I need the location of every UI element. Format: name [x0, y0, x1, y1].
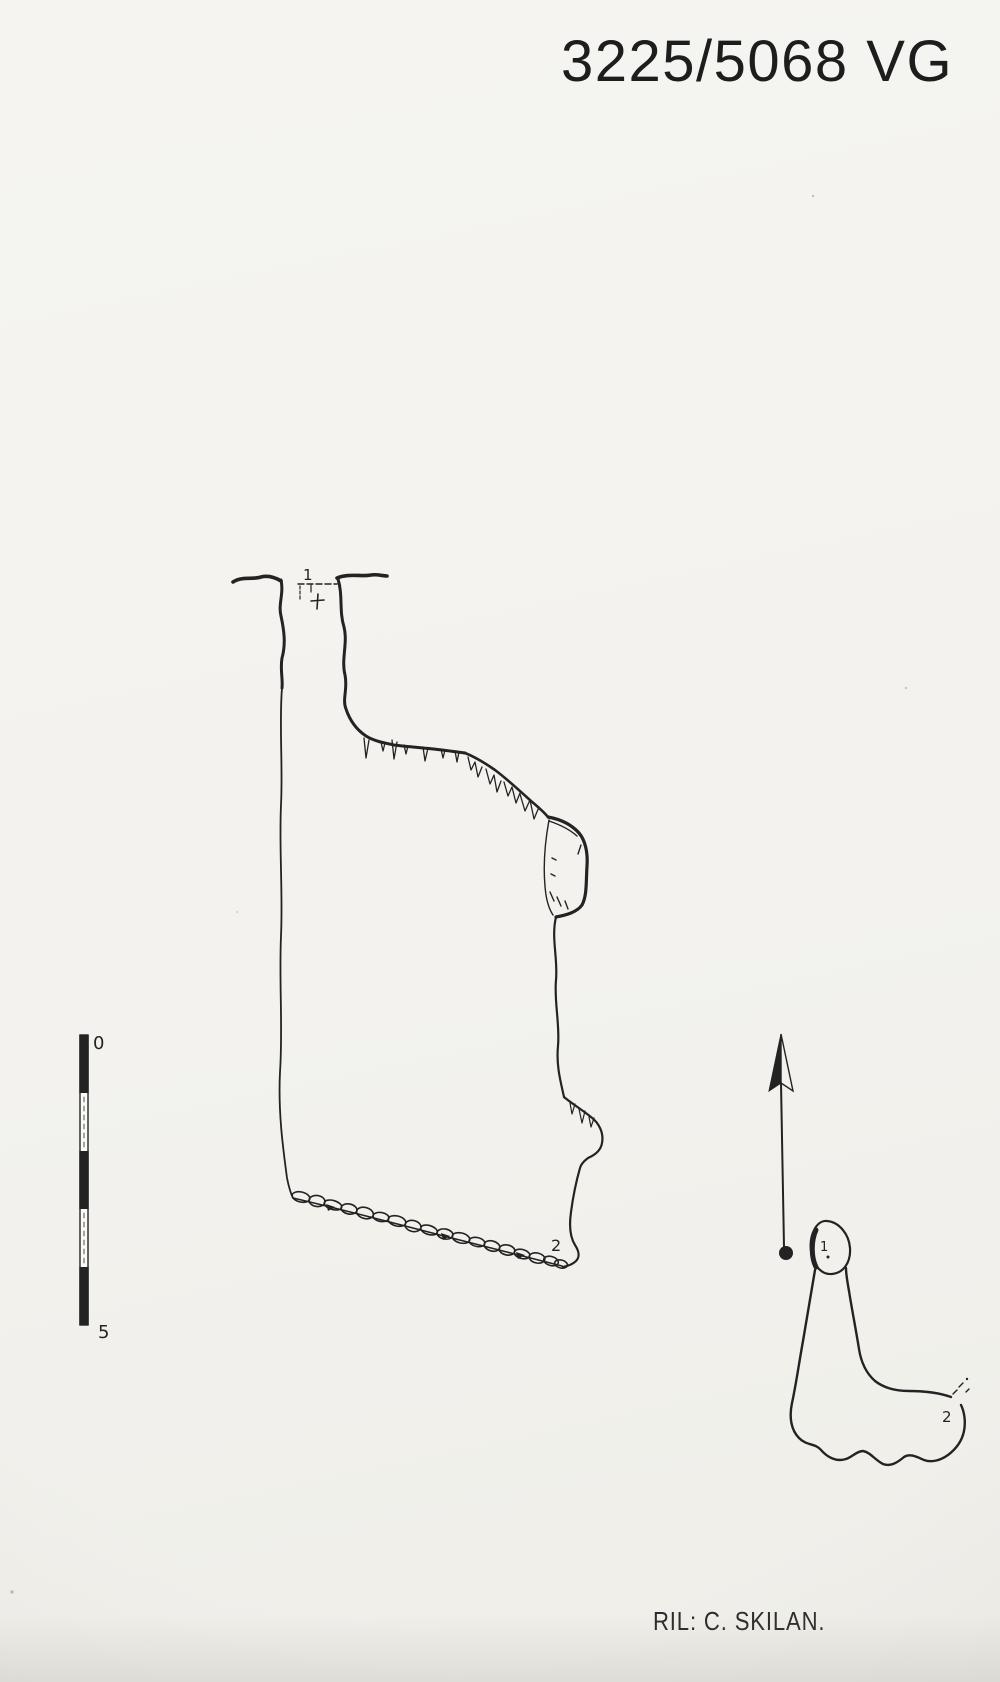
- sloping-wall: [465, 753, 548, 817]
- north-arrow-head-left: [769, 1034, 781, 1091]
- fractured-rock-marks: [468, 757, 539, 819]
- entrance-datum: [298, 584, 337, 609]
- cave-survey-sheet: 3225/5068 VG: [0, 0, 1000, 1682]
- north-arrow: [769, 1034, 793, 1260]
- rubble-floor: [291, 1190, 568, 1269]
- north-arrow-shaft: [781, 1083, 784, 1247]
- survey-drawing: 1 2 0 5: [0, 0, 1000, 1682]
- scale-start-label: 0: [93, 1033, 104, 1054]
- surveyor-credit: RIL: C. SKILAN.: [653, 1606, 825, 1637]
- plan-passage-outline-right: [846, 1268, 951, 1397]
- profile-station-2-label: 2: [551, 1236, 561, 1255]
- plan-station-1-dot: [827, 1256, 830, 1259]
- paper-specks: [10, 195, 907, 1594]
- north-arrow-head-right: [781, 1034, 793, 1091]
- wall-bulge-outline: [548, 817, 587, 917]
- protrusion-stalactite-ticks: [570, 1103, 594, 1127]
- profile-cross-section: 1 2: [233, 566, 602, 1269]
- left-wall-upper: [280, 580, 284, 688]
- survey-cross-mark: [311, 594, 324, 609]
- scale-bar: 0 5: [79, 1033, 109, 1343]
- right-wall-and-ledge: [338, 579, 465, 753]
- plan-passage-outline-left: [791, 1270, 965, 1465]
- surface-line-right: [337, 575, 387, 578]
- scale-end-label: 5: [98, 1322, 109, 1343]
- surface-line-left: [233, 576, 281, 582]
- plan-entrance-oval-shaded-rim: [812, 1230, 816, 1267]
- plan-view: 1 2: [791, 1221, 969, 1465]
- north-arrow-base-dot: [779, 1246, 793, 1260]
- left-wall-lower: [280, 688, 293, 1198]
- plan-end-dashes: [953, 1378, 969, 1394]
- wall-bulge-inner-cracks: [544, 820, 581, 915]
- plan-station-1-label: 1: [820, 1240, 828, 1255]
- right-wall-lower: [554, 917, 564, 1097]
- plan-station-2-label: 2: [942, 1408, 952, 1426]
- profile-station-1-label: 1: [303, 566, 313, 584]
